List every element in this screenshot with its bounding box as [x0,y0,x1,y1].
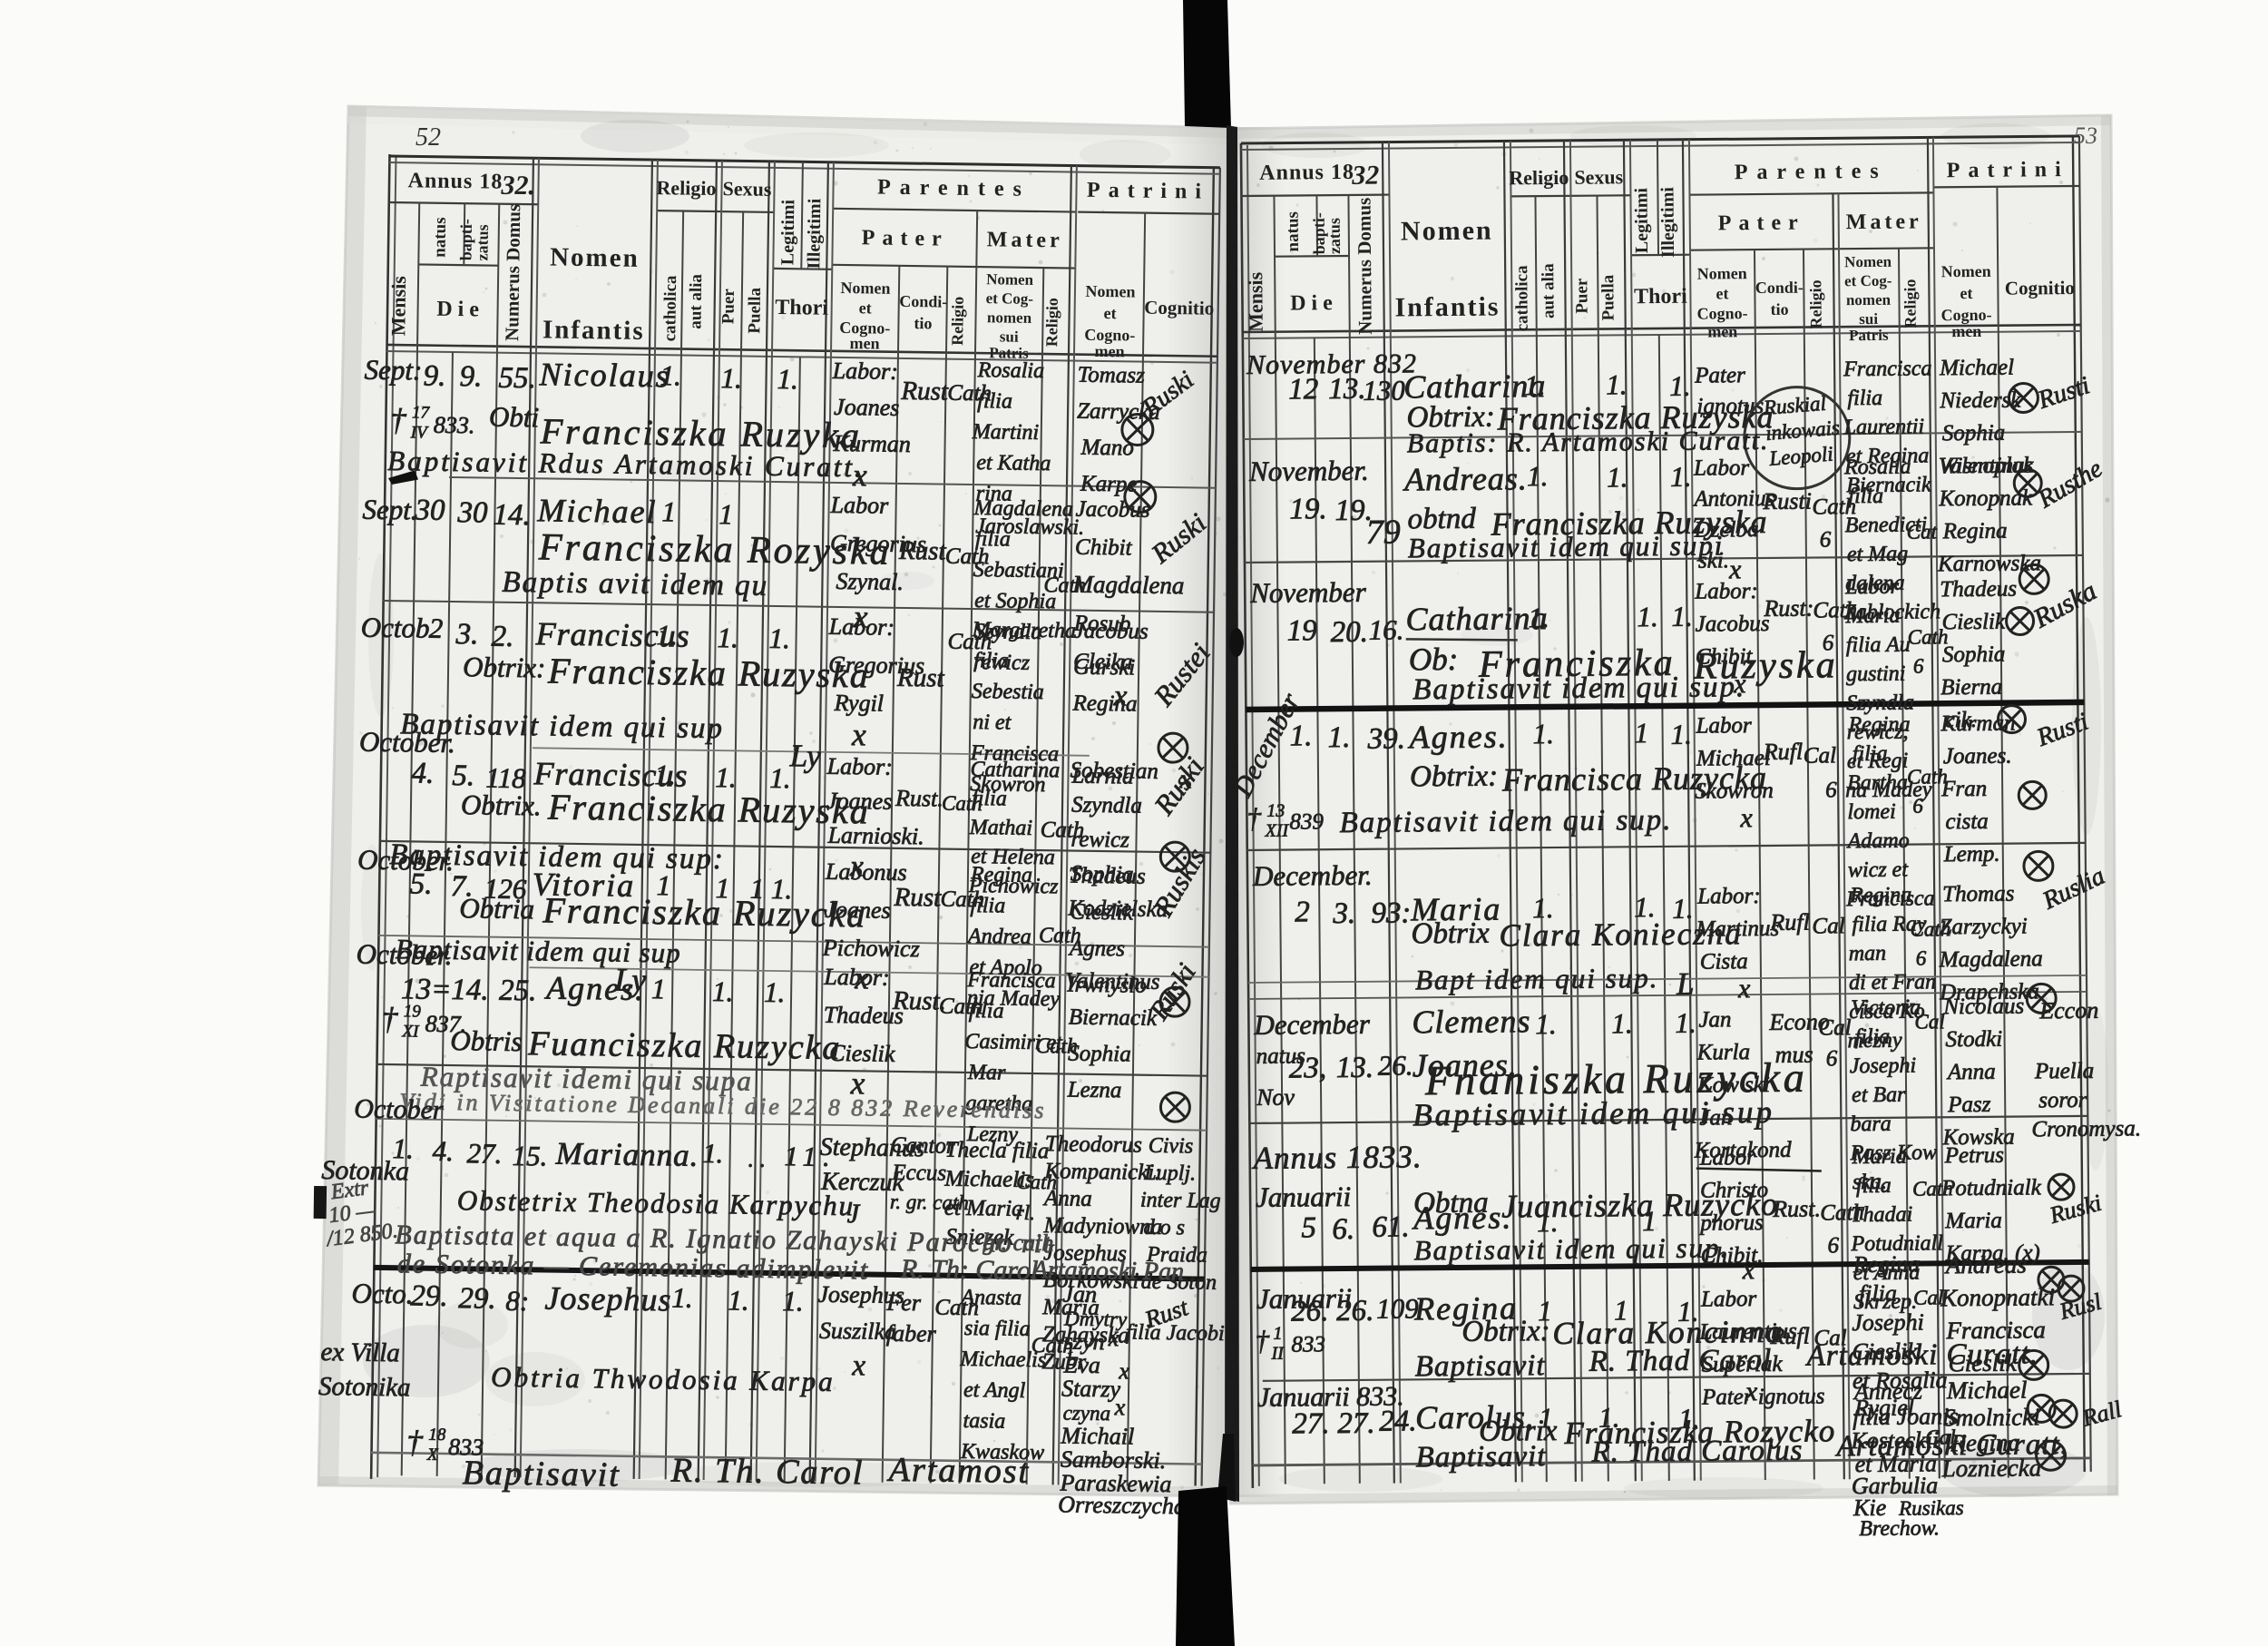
svg-text:Thadeus: Thadeus [1940,577,2017,603]
svg-text:Agnes.: Agnes. [544,969,646,1007]
svg-text:et Bar: et Bar [1852,1083,1906,1108]
svg-text:men: men [850,334,880,352]
svg-text:Brechow.: Brechow. [1859,1516,1940,1541]
svg-text:Rosalia: Rosalia [977,358,1045,383]
svg-text:Nomen: Nomen [986,270,1034,289]
svg-text:Regina: Regina [1071,691,1137,717]
svg-text:27.: 27. [1292,1407,1330,1440]
svg-text:R. Th: Carol: R. Th: Carol [900,1254,1039,1286]
svg-text:Magdalena: Magdalena [973,496,1073,522]
svg-text:19.: 19. [1289,493,1327,525]
svg-text:Maria: Maria [1844,604,1900,629]
svg-text:Josephi: Josephi [1850,1054,1917,1079]
svg-text:4.: 4. [432,1135,454,1167]
svg-text:Cieslik: Cieslik [1070,900,1134,926]
svg-text:Karpe: Karpe [1080,472,1138,497]
svg-text:Thadeus: Thadeus [824,1002,904,1029]
svg-text:6: 6 [1827,1233,1839,1258]
svg-text:1.: 1. [671,1281,693,1313]
svg-text:x: x [1742,1255,1755,1285]
svg-text:Baptis: R. Artamoski Curatt.: Baptis: R. Artamoski Curatt. [1407,426,1770,458]
svg-text:Nomen: Nomen [550,242,640,272]
svg-text:soror: soror [2038,1088,2087,1112]
svg-text:839: 839 [1289,809,1324,834]
svg-text:Octob: Octob [360,612,429,644]
svg-text:1.: 1. [1535,1008,1557,1040]
svg-text:Illegitimi: Illegitimi [804,198,825,269]
svg-text:Theodorus: Theodorus [1045,1132,1142,1157]
svg-text:30: 30 [456,496,488,529]
svg-text:filia: filia [972,787,1007,811]
svg-text:Baptisavit idem qui sup.: Baptisavit idem qui sup. [1413,671,1745,706]
svg-text:Regina: Regina [1853,1251,1921,1279]
svg-text:man: man [1849,942,1887,965]
svg-text:L: L [1676,966,1695,1002]
svg-text:Nicolaus: Nicolaus [538,356,670,394]
svg-text:gr. cath: gr. cath [982,1229,1053,1256]
svg-text:30: 30 [414,494,445,526]
svg-text:filia: filia [975,527,1011,552]
svg-text:Magdalena: Magdalena [1071,571,1184,600]
svg-text:Jan: Jan [1698,1007,1731,1032]
svg-text:32.: 32. [500,171,535,201]
svg-text:nomen: nomen [1846,291,1892,309]
svg-text:19: 19 [404,1002,422,1021]
svg-text:Franciszka Ruzycka: Franciszka Ruzycka [542,889,867,935]
svg-text:1.: 1. [656,619,678,651]
svg-text:IV: IV [410,423,430,442]
svg-text:1.: 1. [1607,461,1628,493]
svg-text:Baptisavit idem qui sup.: Baptisavit idem qui sup. [1413,1231,1729,1266]
svg-text:Smolnicki: Smolnicki [1943,1403,2040,1431]
svg-text:93:: 93: [1371,896,1411,929]
svg-text:Labor: Labor [1844,575,1900,600]
svg-text:1.: 1. [720,362,742,394]
svg-text:Konopnatki: Konopnatki [1940,1283,2055,1311]
svg-text:Thecla filia: Thecla filia [945,1138,1050,1164]
svg-text:†: † [406,1424,425,1459]
svg-text:Rust: Rust [900,377,949,407]
svg-text:Numerus Domus: Numerus Domus [501,204,524,341]
svg-text:Cronomysa.: Cronomysa. [2031,1116,2141,1141]
svg-text:Clemens: Clemens [1412,1003,1530,1040]
svg-text:13.: 13. [1336,1052,1374,1084]
svg-text:R. Th. Carol: R. Th. Carol [670,1451,864,1492]
svg-text:sui: sui [1000,328,1019,345]
svg-text:Numerus Domus: Numerus Domus [1353,198,1375,335]
svg-text:Labor: Labor [1700,1287,1757,1312]
svg-text:Nicolaus: Nicolaus [1942,994,2024,1020]
svg-text:1: 1 [1634,717,1648,749]
svg-text:men: men [1951,322,1981,340]
svg-text:20.: 20. [1330,616,1368,649]
svg-text:Baptisavit idem qui supi: Baptisavit idem qui supi [1408,529,1725,563]
svg-text:1.: 1. [1606,368,1628,400]
svg-text:1.: 1. [1611,1007,1633,1039]
svg-text:1.: 1. [1328,721,1351,754]
svg-text:Religio: Religio [1806,279,1824,328]
svg-text:18: 18 [428,1426,446,1445]
svg-text:Januarii: Januarii [1256,1181,1351,1213]
svg-text:4.: 4. [411,757,434,789]
svg-text:1.: 1. [1528,602,1549,633]
svg-text:Cal: Cal [1818,1015,1851,1040]
svg-text:filia: filia [1854,1025,1890,1049]
svg-text:26.: 26. [1336,1295,1374,1328]
svg-text:Victoria: Victoria [1851,995,1921,1020]
svg-text:x: x [1737,974,1751,1004]
svg-text:Valentinus: Valentinus [1065,968,1160,994]
svg-text:Josephus: Josephus [544,1280,672,1318]
svg-text:Cognitio: Cognitio [2005,277,2075,299]
svg-text:6: 6 [1912,794,1923,817]
svg-text:1.: 1. [1670,461,1692,493]
svg-text:Francisca: Francisca [1843,357,1932,381]
svg-text:Labor:: Labor: [828,613,895,641]
svg-text:rewicz: rewicz [1070,828,1129,853]
svg-text:5.: 5. [410,867,433,900]
svg-text:Sept.: Sept. [362,494,418,526]
svg-text:1.: 1. [768,622,790,654]
svg-text:Sophia: Sophia [1942,642,2006,668]
svg-text:Infantis: Infantis [543,315,645,346]
svg-text:†: † [1246,802,1262,834]
svg-text:Rust.: Rust. [894,785,943,812]
svg-text:Potudnialk: Potudnialk [1941,1175,2042,1200]
svg-text:19: 19 [1286,614,1316,647]
svg-text:Cista: Cista [1700,949,1748,974]
svg-text:Obtrix: Obtrix [1411,917,1490,951]
svg-text:Obtrix.: Obtrix. [461,789,542,821]
svg-text:Nomen: Nomen [1401,216,1493,247]
svg-text:Sept:: Sept: [364,354,422,387]
svg-text:Puella: Puella [2034,1059,2094,1084]
svg-text:Rust:: Rust: [1763,595,1813,622]
svg-text:Jacobus: Jacobus [1695,612,1769,637]
svg-text:Obtria Thwodosia Karpa: Obtria Thwodosia Karpa [491,1361,836,1397]
svg-text:et: et [1716,284,1728,302]
svg-text:Fer: Fer [885,1289,922,1317]
svg-text:Stodki: Stodki [1945,1027,2002,1053]
svg-text:aut alia: aut alia [686,273,706,328]
svg-text:1.: 1. [764,976,786,1008]
svg-text:Nomen: Nomen [1085,282,1135,301]
svg-text:Andreas.: Andreas. [1403,460,1528,497]
svg-text:Anna: Anna [1946,1060,1996,1084]
svg-text:13.: 13. [1328,373,1366,406]
svg-text:Pater: Pater [862,226,949,250]
svg-text:Regina: Regina [1847,713,1910,738]
svg-text:39.: 39. [1367,722,1406,755]
svg-text:filia: filia [1853,742,1888,766]
svg-text:3.: 3. [1332,897,1355,930]
svg-text:Sexus: Sexus [1574,165,1623,188]
svg-text:Jacobus: Jacobus [1074,619,1149,644]
svg-text:Marianna.: Marianna. [554,1136,699,1173]
svg-text:1: 1 [784,1141,797,1171]
svg-text:bara: bara [1850,1112,1892,1136]
svg-text:Civis: Civis [1149,1134,1194,1159]
svg-text:Michael: Michael [1939,356,2014,381]
svg-text:Franciszka Ruzyska: Franciszka Ruzyska [547,786,870,831]
svg-text:Bartha: Bartha [1847,771,1908,796]
svg-text:Eccus: Eccus [891,1161,946,1186]
svg-text:et: et [1104,304,1117,322]
svg-text:27.: 27. [1337,1407,1375,1440]
svg-text:Obtrix:: Obtrix: [463,651,546,683]
svg-text:27.: 27. [466,1137,502,1170]
svg-text:26.: 26. [1378,1049,1413,1081]
svg-text:26.: 26. [1291,1295,1329,1328]
svg-text:Thadeus: Thadeus [1069,864,1146,889]
svg-text:8:: 8: [505,1285,529,1317]
svg-text:sui: sui [1859,310,1878,328]
svg-text:inter Lag: inter Lag [1140,1189,1221,1213]
svg-text:Annecz: Annecz [1853,1377,1922,1405]
svg-text:Baptis avit idem qu: Baptis avit idem qu [502,566,768,603]
svg-text:Ly: Ly [789,738,822,773]
svg-text:Mater: Mater [987,228,1063,252]
svg-text:Zarzyckyi: Zarzyckyi [1939,914,2027,939]
svg-text:Obtna: Obtna [1413,1187,1489,1220]
svg-text:December: December [1253,1008,1371,1041]
svg-text:Clara Konieczna: Clara Konieczna [1499,916,1743,953]
svg-text:Condi-: Condi- [899,292,947,311]
svg-text:Luplj.: Luplj. [1143,1161,1196,1186]
svg-text:Anna: Anna [1042,1186,1092,1211]
svg-text:16.: 16. [1368,613,1403,645]
svg-text:Adamo: Adamo [1846,829,1910,854]
svg-text:13: 13 [1266,801,1285,821]
svg-text:Jan: Jan [1062,1280,1097,1308]
svg-text:Thori: Thori [775,296,828,320]
svg-text:ni et: ni et [973,710,1012,735]
svg-text:1.: 1. [1637,601,1658,632]
svg-text:1: 1 [1273,1324,1282,1344]
svg-text:1.: 1. [1289,720,1312,752]
svg-text:Labor: Labor [1699,1145,1756,1171]
svg-text:†: † [381,1001,399,1036]
svg-text:Rust.: Rust. [1772,1195,1821,1221]
svg-text:1.: 1. [1532,718,1554,750]
svg-text:Annus 18: Annus 18 [407,169,503,193]
svg-text:X: X [426,1445,439,1465]
svg-text:Mathai: Mathai [969,816,1033,840]
svg-text:Thori: Thori [1634,285,1687,309]
svg-text:Patris: Patris [1849,327,1889,344]
svg-text:24.: 24. [1379,1405,1417,1437]
svg-text:6: 6 [1916,946,1927,969]
svg-text:October.: October. [359,726,455,759]
svg-text:October.: October. [357,844,454,877]
svg-text:Annus 1833.: Annus 1833. [1252,1139,1422,1176]
svg-text:Magdalena: Magdalena [1939,946,2043,972]
svg-text:filia: filia [977,389,1012,414]
svg-text:Patrini: Patrini [1087,179,1209,204]
svg-text:Pater ignotus: Pater ignotus [1701,1384,1825,1409]
svg-text:Rust: Rust [893,883,942,913]
svg-text:1: 1 [719,498,733,530]
svg-text:Bapt idem qui sup.: Bapt idem qui sup. [1415,962,1659,995]
svg-text:1.: 1. [777,363,798,395]
svg-text:1.: 1. [1670,719,1692,750]
svg-text:filia: filia [1847,387,1882,410]
svg-text:Octo.: Octo. [351,1278,413,1310]
svg-text:1.: 1. [1669,370,1691,402]
svg-text:Agnes: Agnes [1068,936,1125,962]
svg-text:Eccon: Eccon [2038,997,2098,1024]
svg-text:Franciszka Rozyska: Franciszka Rozyska [538,526,892,573]
svg-text:12: 12 [1288,373,1318,406]
svg-text:et: et [1960,284,1972,302]
svg-text:Rust: Rust [898,536,947,566]
svg-text:Labor: Labor [829,492,889,519]
svg-text:Sotonika: Sotonika [318,1372,411,1402]
svg-text:Puer: Puer [1572,278,1591,314]
svg-text:52: 52 [415,123,441,152]
svg-text:Baptisavit idem qui sup.: Baptisavit idem qui sup. [1339,804,1672,839]
svg-text:Joanes.: Joanes. [1943,744,2012,769]
svg-text:1.: 1. [728,1284,749,1316]
svg-text:1: 1 [661,495,676,527]
svg-text:Legitimi: Legitimi [777,199,798,265]
svg-text:Labor:: Labor: [1694,579,1758,604]
svg-text:Nomen: Nomen [840,279,890,298]
svg-text:October.: October. [356,938,452,971]
svg-text:Nomen: Nomen [1941,262,1991,280]
svg-text:61.: 61. [1372,1210,1410,1243]
svg-text:Cat: Cat [1907,520,1938,543]
svg-text:1.: 1. [1675,1007,1696,1039]
svg-text:1.: 1. [717,622,738,653]
svg-text:Andreas: Andreas [1944,1250,2027,1279]
svg-text:Franciszka Ruzyska: Franciszka Ruzyska [547,650,870,695]
svg-text:Mensis: Mensis [386,276,410,337]
svg-text:Mater: Mater [1846,210,1922,234]
svg-text:Jacobus: Jacobus [1075,497,1149,523]
svg-text:Religio: Religio [1509,166,1569,190]
svg-text:catholica: catholica [1512,265,1532,331]
svg-text:Cogno-: Cogno- [1697,304,1748,322]
svg-text:Sophia: Sophia [1068,1042,1131,1067]
svg-text:Puella: Puella [1598,274,1618,320]
svg-text:Lezna: Lezna [1066,1078,1121,1103]
svg-text:Pater: Pater [1718,211,1805,236]
svg-text:Religio: Religio [1901,279,1919,328]
svg-text:Labor: Labor [1693,456,1750,481]
svg-text:1.: 1. [702,1139,723,1169]
svg-text:Fuanciszka Ruzycka: Fuanciszka Ruzycka [527,1024,842,1067]
svg-text:December.: December. [1252,859,1373,892]
svg-text:Francisca: Francisca [966,968,1056,993]
svg-text:Obstetrix Theodosia Karpychu: Obstetrix Theodosia Karpychu [457,1184,855,1221]
svg-text:Parentes: Parentes [1735,160,1888,184]
svg-text:Cal: Cal [1913,1286,1943,1308]
svg-text:Suszilka: Suszilka [819,1318,897,1345]
svg-text:833.: 833. [434,412,475,439]
svg-text:1.: 1. [660,359,681,391]
svg-text:Artamoski Curatt,: Artamoski Curatt, [1834,1428,2068,1463]
svg-text:1.: 1. [712,975,734,1007]
svg-text:14.: 14. [493,499,531,533]
svg-text:Baptisavit: Baptisavit [1415,1349,1546,1383]
svg-text:Bierna: Bierna [1941,675,2002,701]
svg-text:6: 6 [1913,654,1924,677]
svg-text:Thadai: Thadai [1851,1203,1912,1228]
svg-text:November.: November. [1248,455,1369,487]
svg-text:9.: 9. [423,360,445,393]
svg-text:5.: 5. [452,759,474,792]
svg-text:Artamoski Curatt.: Artamoski Curatt. [1804,1337,2038,1372]
svg-text:Francisca Ruzycka: Francisca Ruzycka [1501,759,1767,799]
svg-text:1.: 1. [1527,460,1549,492]
svg-text:Puella: Puella [745,287,765,333]
svg-text:†: † [390,402,408,437]
svg-text:et Cog-: et Cog- [1844,272,1892,289]
svg-text:Anasta: Anasta [959,1286,1022,1310]
svg-text:109: 109 [1376,1292,1419,1324]
svg-text:Regina: Regina [970,863,1032,887]
svg-text:tio: tio [914,314,932,332]
svg-text:Artamoski Pan: Artamoski Pan [1031,1256,1185,1286]
svg-text:Patrini: Patrini [1947,158,2069,182]
svg-text:Fran: Fran [1941,777,1987,801]
svg-text:Starzy: Starzy [1061,1375,1121,1402]
svg-text:aut alia: aut alia [1539,263,1559,318]
svg-text:Gurski: Gurski [1073,655,1135,681]
svg-text:filia: filia [1856,1174,1892,1198]
svg-text:55.: 55. [498,362,536,396]
svg-text:Juanciszka Ruzycko: Juanciszka Ruzycko [1501,1186,1778,1225]
svg-text:et Maria: et Maria [944,1196,1023,1221]
svg-text:6: 6 [1820,527,1832,552]
svg-text:2: 2 [1295,896,1310,928]
svg-text:Szyndla: Szyndla [1071,793,1142,818]
svg-text:Labor: Labor [1695,713,1752,739]
svg-text:25.: 25. [499,975,537,1008]
svg-text:czyna: czyna [1063,1401,1111,1425]
svg-text:6.: 6. [1332,1213,1354,1246]
svg-text:natus: natus [430,217,450,258]
svg-text:x: x [851,1349,866,1382]
svg-text:nomen: nomen [987,309,1032,327]
svg-text:zatus: zatus [473,224,492,260]
svg-text:Obtrix:: Obtrix: [1461,1315,1549,1348]
svg-text:November: November [1249,576,1367,609]
svg-text:Cal: Cal [1914,1010,1944,1033]
svg-text:6: 6 [1826,1046,1838,1071]
svg-text:October: October [354,1094,444,1125]
svg-text:Laurentii: Laurentii [1843,415,1925,439]
svg-text:Illegitimi: Illegitimi [1657,187,1678,258]
svg-text:et Katha: et Katha [976,451,1051,475]
svg-text:2.: 2. [491,621,513,653]
svg-text:Cieslik: Cieslik [1941,610,2006,635]
svg-text:Mar: Mar [967,1061,1006,1085]
svg-text:Cal: Cal [1812,914,1844,938]
svg-text:II: II [1270,1344,1285,1364]
svg-text:Martini: Martini [972,420,1040,445]
svg-text:x: x [851,717,867,752]
svg-text:Legitimi: Legitimi [1631,187,1652,253]
svg-text:833: 833 [1291,1332,1325,1357]
svg-text:XII: XII [1264,821,1289,841]
svg-text:et Angl: et Angl [963,1378,1026,1403]
svg-text:Labor:: Labor: [826,753,893,780]
svg-text:2: 2 [428,612,443,644]
svg-text:Labor:: Labor: [832,358,899,385]
svg-text:Kurman: Kurman [1940,711,2015,737]
